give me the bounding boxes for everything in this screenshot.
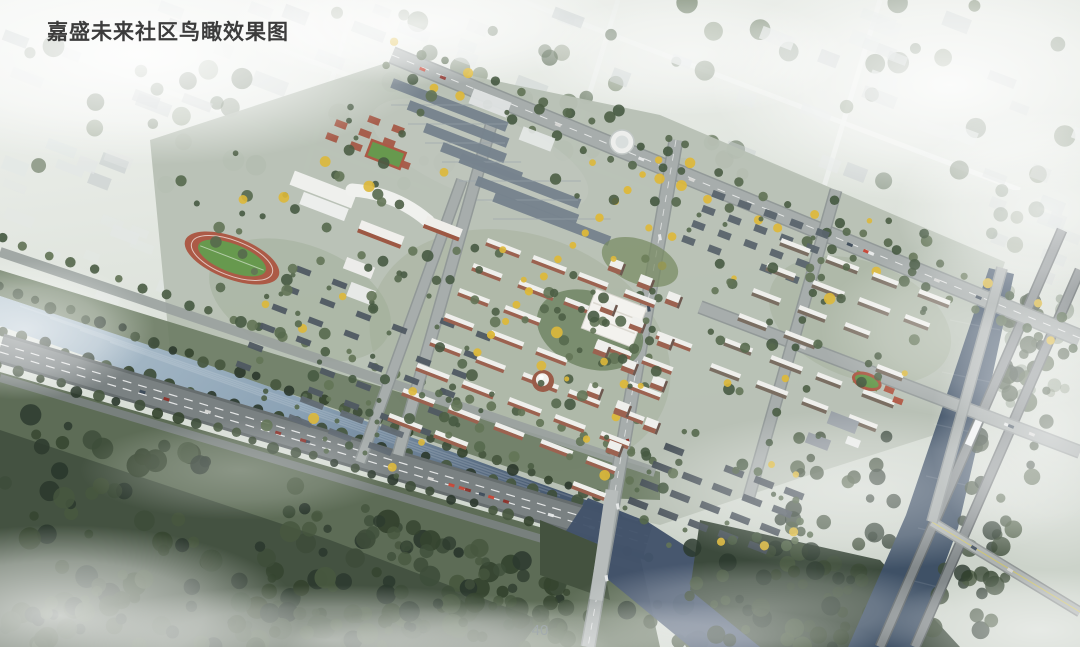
page-title: 嘉盛未来社区鸟瞰效果图 <box>47 16 289 46</box>
page-number: 40 <box>0 622 1080 639</box>
slide-page: 嘉盛未来社区鸟瞰效果图 40 <box>0 0 1080 647</box>
aerial-rendering-image <box>0 0 1080 647</box>
